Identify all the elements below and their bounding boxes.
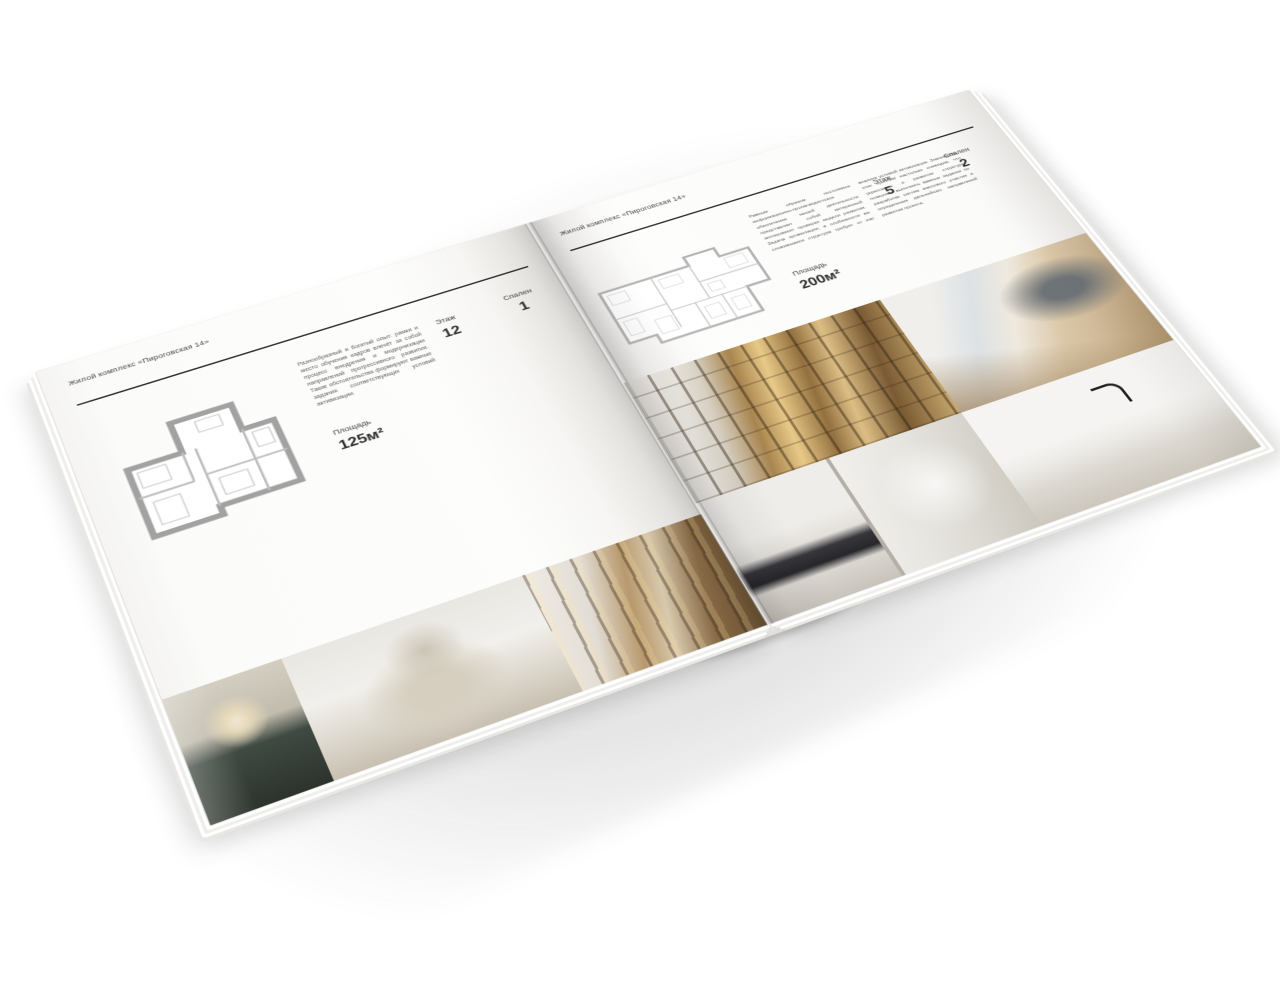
left-area-stat: Площадь 125м² (332, 416, 388, 454)
left-bedrooms-stat: Спален 1 (491, 284, 553, 321)
faucet-shape (1090, 381, 1130, 407)
right-area-stat: Площадь 200м² (791, 259, 845, 292)
left-page-header: Жилой комплекс «Пироговская 14» (67, 338, 210, 387)
left-page-description: Разнообразный и богатый опыт: рамки и ме… (297, 325, 441, 409)
scene: Жилой комплекс «Пироговская 14» Разнообр… (0, 0, 1280, 835)
left-floor-stat: Этаж 12 (418, 309, 481, 346)
